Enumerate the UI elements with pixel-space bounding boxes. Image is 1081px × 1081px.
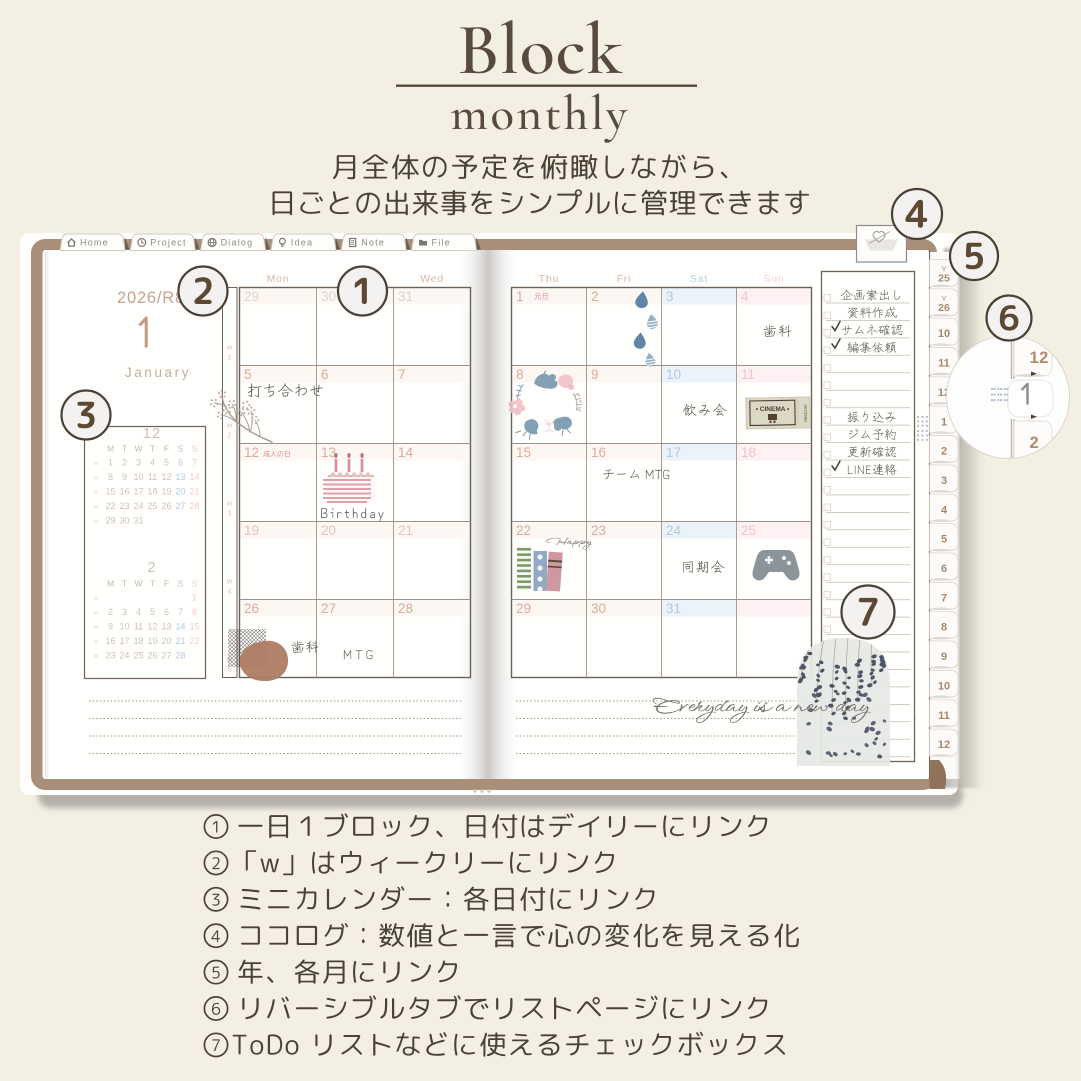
- svg-text:3: 3: [122, 607, 127, 617]
- svg-text:w: w: [93, 476, 99, 482]
- svg-text:17: 17: [133, 487, 143, 497]
- svg-text:17: 17: [119, 636, 129, 646]
- svg-text:7: 7: [178, 607, 183, 617]
- svg-text:T: T: [150, 444, 155, 454]
- svg-text:18: 18: [133, 636, 143, 646]
- svg-text:Wed: Wed: [420, 273, 444, 285]
- svg-text:13: 13: [161, 622, 171, 632]
- svg-text:23: 23: [591, 523, 606, 538]
- svg-text:12: 12: [147, 622, 157, 632]
- svg-text:11: 11: [938, 710, 950, 722]
- svg-text:1: 1: [108, 458, 113, 468]
- svg-text:W: W: [134, 579, 142, 589]
- svg-text:Dialog: Dialog: [221, 238, 254, 248]
- svg-text:20: 20: [175, 487, 185, 497]
- svg-text:23: 23: [105, 651, 115, 661]
- svg-text:w: w: [93, 519, 99, 525]
- svg-text:5: 5: [244, 367, 252, 382]
- svg-text:8: 8: [108, 472, 113, 482]
- svg-text:30: 30: [591, 601, 606, 616]
- svg-text:2: 2: [147, 560, 156, 576]
- svg-text:1: 1: [941, 416, 947, 428]
- svg-text:6: 6: [178, 458, 183, 468]
- svg-text:3: 3: [666, 289, 674, 304]
- svg-text:w: w: [226, 421, 233, 430]
- svg-text:9: 9: [591, 367, 599, 382]
- svg-text:w: w: [226, 343, 233, 352]
- svg-text:24: 24: [133, 501, 143, 511]
- svg-text:26: 26: [161, 501, 171, 511]
- svg-text:2: 2: [591, 289, 599, 304]
- svg-text:21: 21: [175, 636, 185, 646]
- svg-text:4: 4: [150, 458, 155, 468]
- svg-text:T: T: [122, 579, 127, 589]
- svg-text:11: 11: [938, 358, 950, 370]
- svg-text:10: 10: [938, 328, 950, 340]
- svg-text:2026/R8: 2026/R8: [117, 289, 185, 307]
- svg-text:22: 22: [105, 501, 115, 511]
- svg-text:10: 10: [119, 622, 129, 632]
- svg-text:11: 11: [148, 472, 157, 482]
- svg-text:26: 26: [938, 302, 950, 314]
- svg-text:Home: Home: [80, 238, 109, 248]
- svg-text:10: 10: [133, 472, 143, 482]
- svg-text:25: 25: [741, 523, 756, 538]
- svg-text:5: 5: [228, 667, 232, 674]
- svg-text:10: 10: [666, 367, 681, 382]
- svg-text:2: 2: [941, 446, 947, 458]
- svg-text:12: 12: [161, 472, 171, 482]
- svg-text:4: 4: [741, 289, 749, 304]
- svg-text:8: 8: [516, 367, 524, 382]
- svg-text:22: 22: [516, 523, 531, 538]
- svg-text:25: 25: [133, 651, 143, 661]
- svg-text:2: 2: [108, 607, 113, 617]
- svg-text:9: 9: [108, 622, 113, 632]
- svg-text:19: 19: [161, 487, 171, 497]
- svg-text:F: F: [164, 579, 169, 589]
- svg-text:Sun: Sun: [763, 273, 784, 285]
- svg-text:Project: Project: [150, 238, 186, 248]
- svg-text:2: 2: [122, 458, 127, 468]
- svg-text:2: 2: [228, 433, 232, 440]
- svg-text:4: 4: [941, 504, 948, 516]
- svg-text:14: 14: [398, 445, 414, 460]
- svg-text:M: M: [107, 579, 114, 589]
- svg-text:12: 12: [143, 426, 161, 442]
- svg-text:6: 6: [164, 607, 169, 617]
- svg-text:w: w: [93, 640, 99, 646]
- svg-text:5: 5: [164, 458, 169, 468]
- svg-text:w: w: [93, 490, 99, 496]
- svg-text:24: 24: [119, 651, 129, 661]
- svg-text:19: 19: [147, 636, 157, 646]
- svg-text:1: 1: [192, 593, 197, 603]
- svg-text:1: 1: [516, 289, 524, 304]
- svg-text:8: 8: [192, 607, 197, 617]
- svg-text:11: 11: [741, 367, 755, 382]
- svg-text:F: F: [164, 444, 169, 454]
- svg-text:w: w: [93, 625, 99, 631]
- svg-text:15: 15: [516, 445, 531, 460]
- svg-text:27: 27: [175, 501, 185, 511]
- svg-text:27: 27: [321, 601, 336, 616]
- svg-text:13: 13: [321, 445, 336, 460]
- svg-text:12: 12: [938, 739, 950, 751]
- svg-text:4: 4: [136, 607, 141, 617]
- svg-text:28: 28: [175, 651, 185, 661]
- svg-text:16: 16: [119, 487, 129, 497]
- svg-text:w: w: [93, 654, 99, 660]
- svg-text:25: 25: [147, 501, 157, 511]
- svg-text:• CINEMA •: • CINEMA •: [756, 406, 790, 413]
- svg-text:24: 24: [666, 523, 682, 538]
- svg-text:2: 2: [1030, 434, 1039, 452]
- svg-text:w: w: [226, 499, 233, 508]
- svg-text:File: File: [432, 238, 451, 248]
- svg-text:15: 15: [189, 622, 199, 632]
- svg-text:28: 28: [189, 501, 199, 511]
- svg-text:11: 11: [134, 622, 143, 632]
- svg-text:7: 7: [192, 458, 197, 468]
- svg-text:16: 16: [105, 636, 115, 646]
- svg-text:Sat: Sat: [690, 273, 708, 285]
- svg-text:w: w: [93, 596, 99, 602]
- svg-text:30: 30: [321, 289, 336, 304]
- svg-text:Fri: Fri: [617, 273, 632, 285]
- svg-text:9: 9: [122, 472, 127, 482]
- svg-text:21: 21: [398, 523, 413, 538]
- svg-text:29: 29: [516, 601, 531, 616]
- svg-text:14: 14: [175, 622, 185, 632]
- svg-text:5: 5: [941, 534, 947, 546]
- svg-text:w: w: [93, 611, 99, 617]
- svg-text:20: 20: [161, 636, 171, 646]
- svg-text:Idea: Idea: [291, 238, 313, 248]
- svg-text:6: 6: [321, 367, 329, 382]
- svg-text:18: 18: [147, 487, 157, 497]
- svg-text:S: S: [178, 444, 184, 454]
- svg-text:3672890: 3672890: [803, 404, 808, 422]
- svg-text:3: 3: [228, 511, 232, 518]
- svg-text:3: 3: [941, 475, 947, 487]
- svg-text:January: January: [125, 365, 191, 380]
- svg-text:31: 31: [398, 289, 413, 304]
- svg-text:21: 21: [189, 487, 199, 497]
- svg-text:6: 6: [941, 563, 947, 575]
- svg-text:W: W: [134, 444, 142, 454]
- svg-text:29: 29: [105, 516, 115, 526]
- svg-text:Note: Note: [361, 238, 385, 248]
- svg-text:15: 15: [105, 487, 115, 497]
- svg-text:w: w: [93, 461, 99, 467]
- svg-text:Thu: Thu: [539, 273, 560, 285]
- svg-text:S: S: [178, 579, 184, 589]
- svg-text:31: 31: [666, 601, 681, 616]
- svg-text:29: 29: [244, 289, 259, 304]
- svg-text:19: 19: [244, 523, 259, 538]
- svg-text:S: S: [192, 579, 198, 589]
- svg-text:23: 23: [119, 501, 129, 511]
- svg-text:26: 26: [244, 601, 259, 616]
- svg-text:T: T: [150, 579, 155, 589]
- svg-text:4: 4: [228, 589, 232, 596]
- svg-text:22: 22: [189, 636, 199, 646]
- svg-text:w: w: [226, 577, 233, 586]
- svg-text:3: 3: [136, 458, 141, 468]
- svg-text:12: 12: [244, 445, 259, 460]
- svg-text:10: 10: [938, 680, 950, 692]
- svg-text:Mon: Mon: [267, 273, 290, 285]
- svg-text:17: 17: [666, 445, 681, 460]
- svg-text:9: 9: [941, 651, 947, 663]
- svg-text:w: w: [93, 505, 99, 511]
- svg-text:27: 27: [161, 651, 171, 661]
- svg-text:7: 7: [941, 592, 947, 604]
- svg-text:25: 25: [938, 273, 950, 285]
- svg-text:12: 12: [1030, 349, 1049, 367]
- svg-text:13: 13: [175, 472, 185, 482]
- svg-text:7: 7: [398, 367, 406, 382]
- svg-text:20: 20: [321, 523, 336, 538]
- svg-text:5: 5: [150, 607, 155, 617]
- svg-text:28: 28: [398, 601, 413, 616]
- svg-text:18: 18: [741, 445, 756, 460]
- svg-text:26: 26: [147, 651, 157, 661]
- svg-text:8: 8: [941, 622, 947, 634]
- svg-text:1: 1: [228, 355, 232, 362]
- svg-text:16: 16: [591, 445, 606, 460]
- svg-text:M: M: [107, 444, 114, 454]
- svg-text:S: S: [192, 444, 198, 454]
- svg-text:31: 31: [133, 516, 143, 526]
- svg-text:14: 14: [189, 472, 199, 482]
- svg-text:T: T: [122, 444, 127, 454]
- svg-text:30: 30: [119, 516, 129, 526]
